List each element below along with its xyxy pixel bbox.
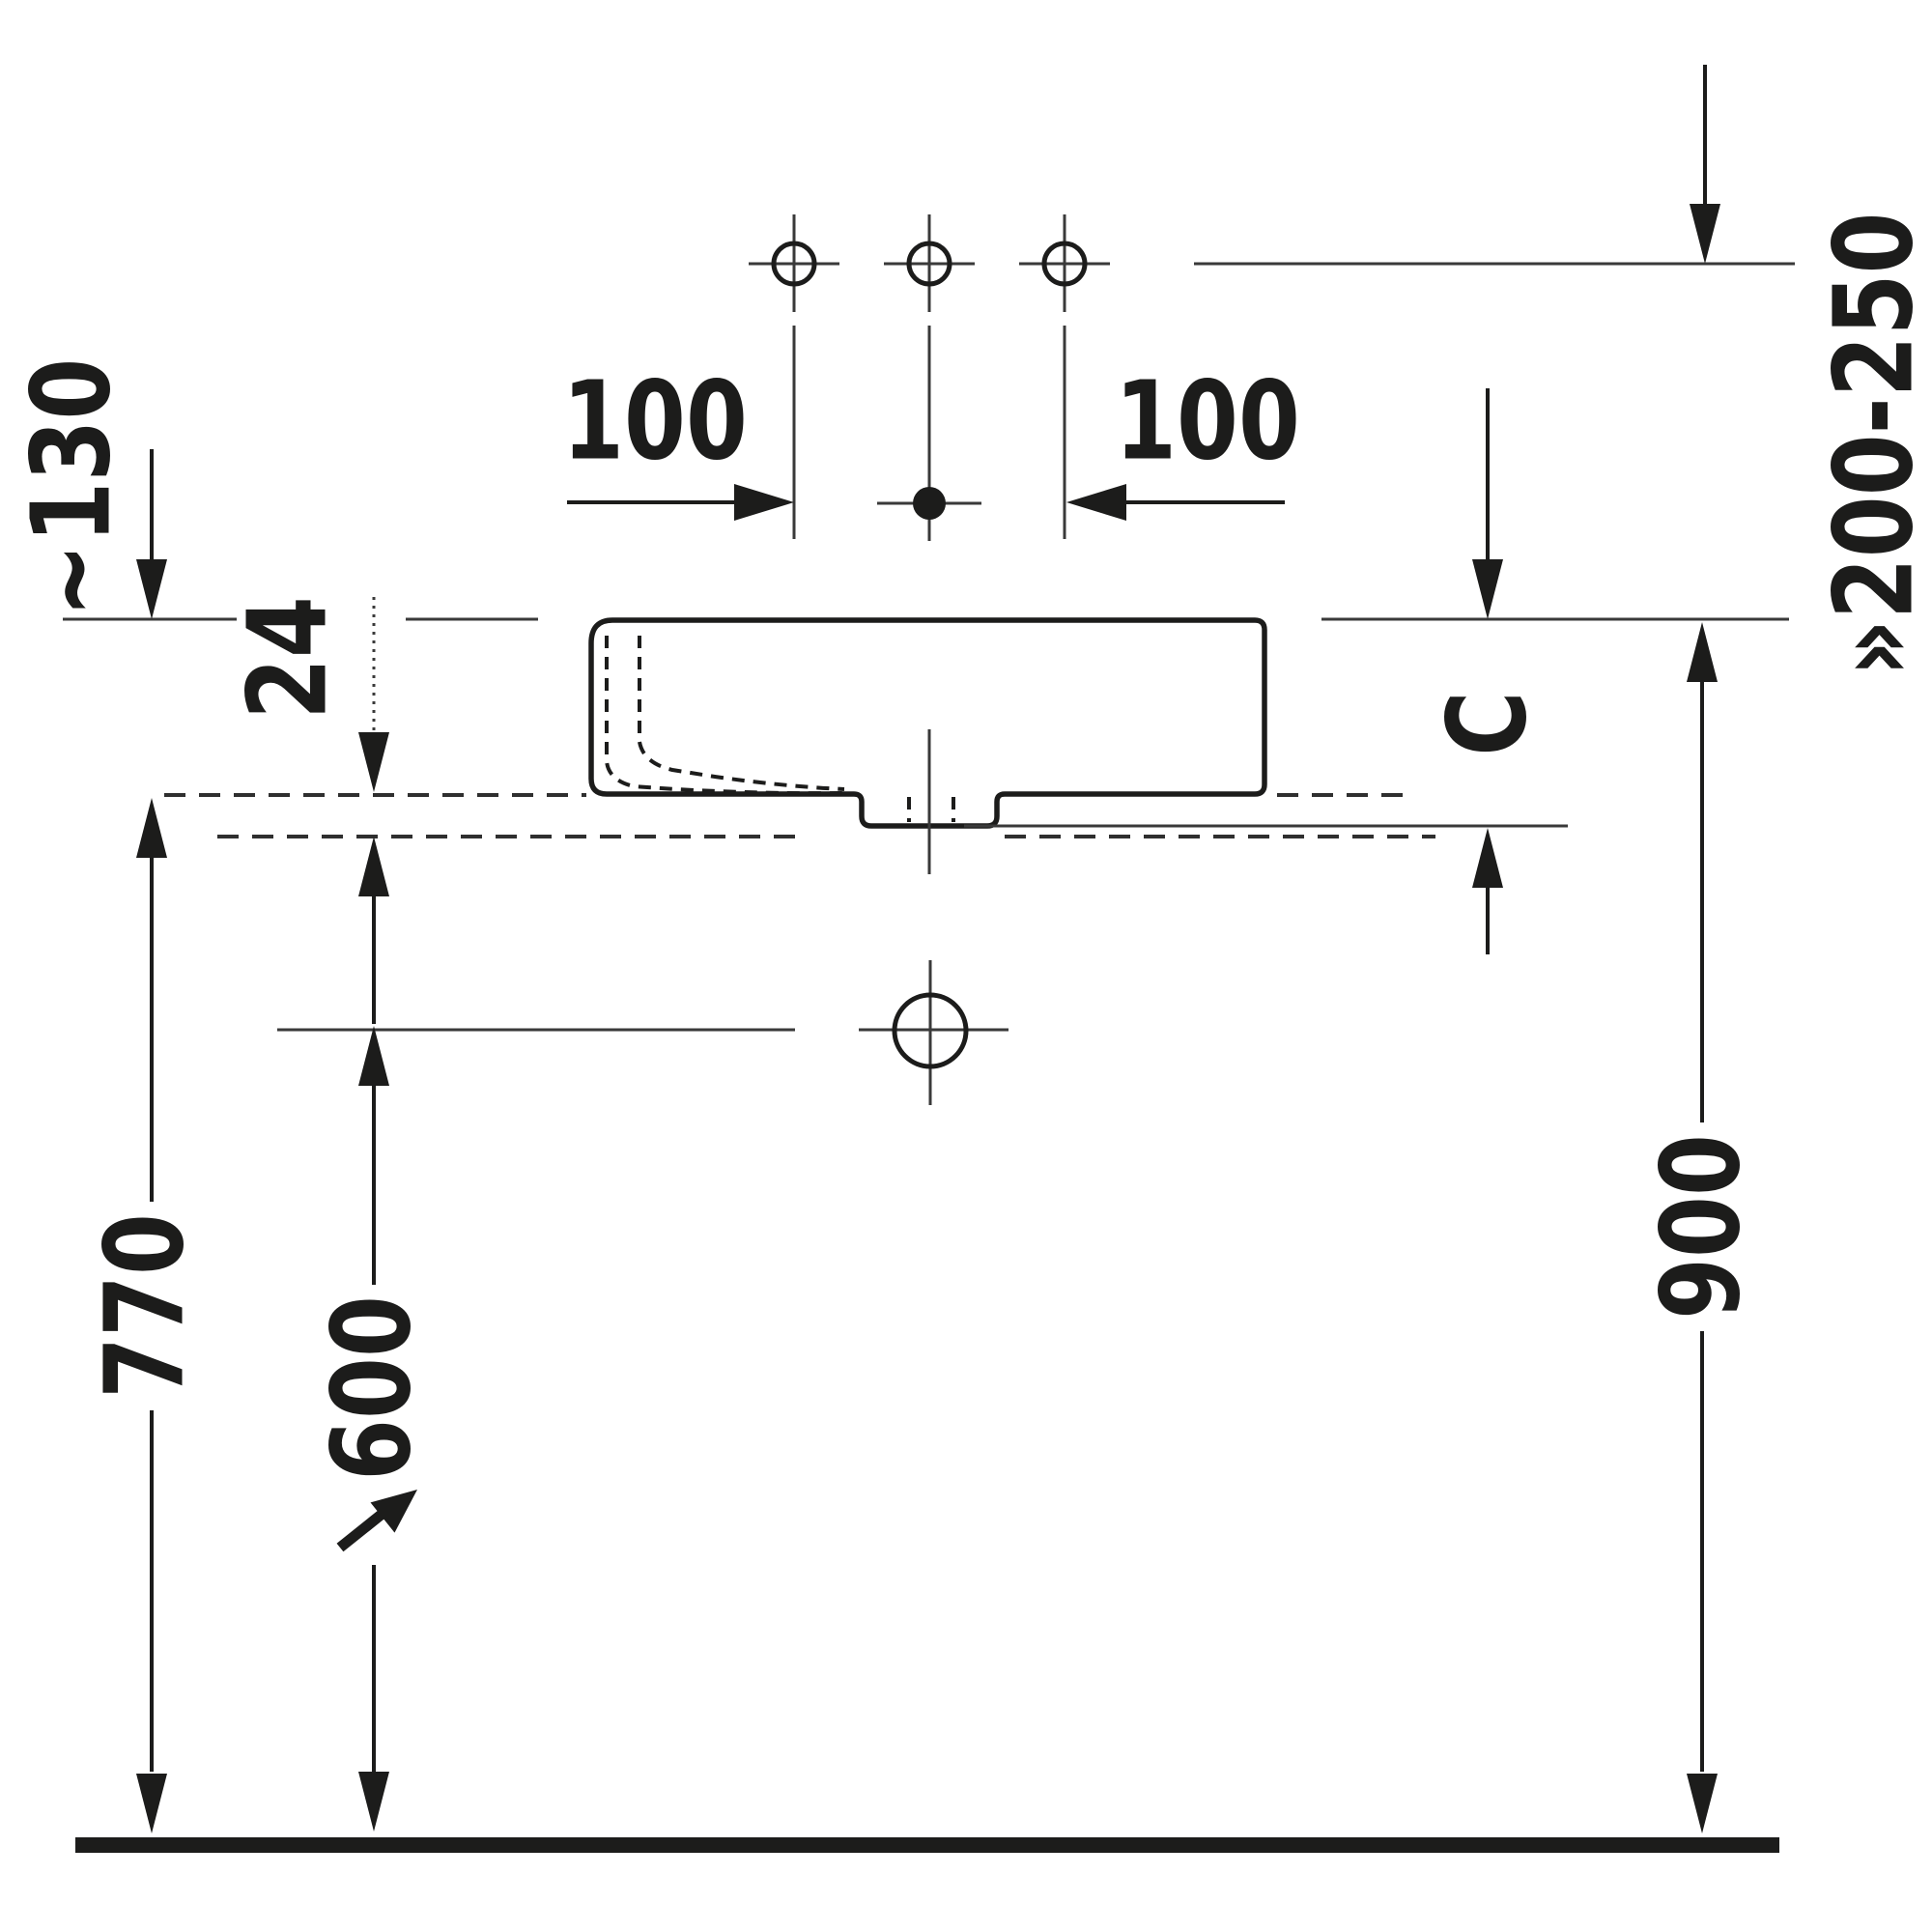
geometry-layer: [63, 65, 1795, 1853]
arrowhead-24-upper: [358, 732, 389, 792]
washbasin-dimension-diagram: ~130 24 100 100 »200-250 C 770 600 900: [0, 0, 1932, 1932]
label-900: 900: [1639, 1134, 1765, 1320]
arrowhead-100-left: [734, 484, 794, 521]
arrowhead-600-bottom: [358, 1772, 389, 1832]
floor-line: [75, 1837, 1779, 1853]
arrowhead-24-lower: [358, 837, 389, 896]
arrowhead-c-top: [1472, 559, 1503, 619]
label-100-left: 100: [562, 359, 748, 485]
dimension-labels-layer: ~130 24 100 100 »200-250 C 770 600 900: [10, 213, 1932, 1481]
label-200-250: »200-250: [1812, 213, 1932, 677]
arrowhead-c-bottom: [1472, 828, 1503, 888]
arrowhead-900-top: [1687, 622, 1718, 682]
label-100-right: 100: [1115, 359, 1300, 485]
arrowhead-100-right: [1066, 484, 1126, 521]
arrowhead-770-top: [136, 798, 167, 858]
arrowhead-130: [136, 559, 167, 619]
arrowhead-200-250-top: [1690, 204, 1720, 264]
center-reference-dot: [913, 487, 946, 520]
label-approx-130: ~130: [10, 358, 135, 618]
label-770: 770: [83, 1213, 209, 1399]
arrowhead-770-bottom: [136, 1774, 167, 1833]
label-c: C: [1426, 691, 1551, 755]
arrowhead-900-bottom: [1687, 1774, 1718, 1833]
arrowhead-600-top: [358, 1026, 389, 1086]
min-distance-arrowhead: [371, 1490, 418, 1533]
technical-drawing-page: ~130 24 100 100 »200-250 C 770 600 900: [0, 0, 1932, 1932]
label-600: 600: [310, 1295, 436, 1481]
label-24: 24: [226, 596, 352, 720]
